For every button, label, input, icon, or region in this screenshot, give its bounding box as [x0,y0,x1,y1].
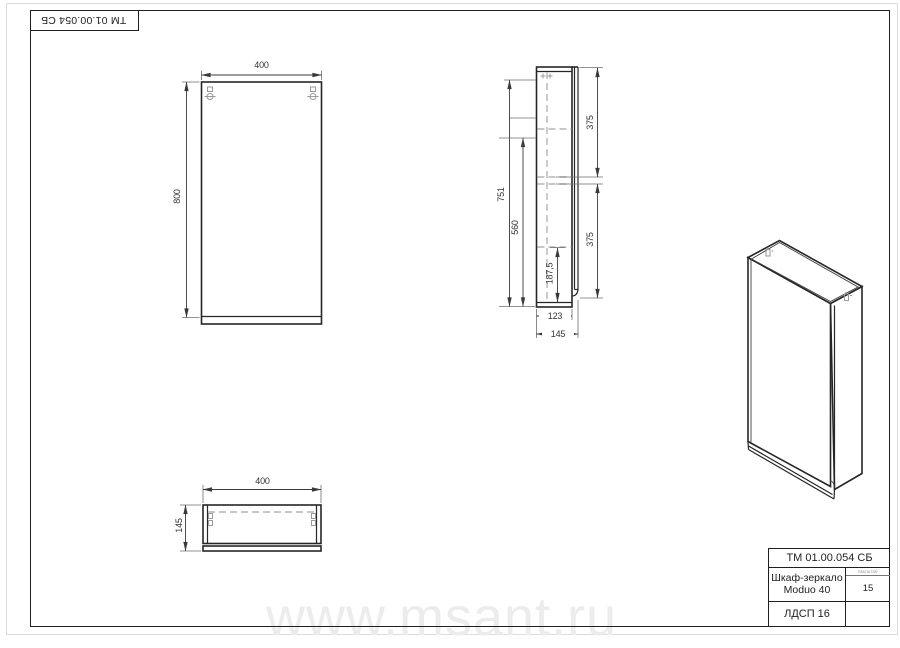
dim-bottom-width: 400 [245,477,280,486]
corner-stamp-code: ТМ 01.00.054 СБ [41,14,126,26]
corner-stamp: ТМ 01.00.054 СБ [30,10,139,31]
title-block: ТМ 01.00.054 СБ Шкаф-зеркало Moduo 40 Ма… [768,548,890,628]
dim-side-375-lower: 375 [586,222,595,257]
dim-side-560: 560 [511,210,520,245]
dim-side-187-5: 187,5 [546,252,555,296]
product-name: Шкаф-зеркало Moduo 40 [769,568,846,601]
dim-side-123: 123 [539,312,571,321]
drawing-frame [30,10,891,627]
scale-value: 15 [846,576,890,601]
product-name-line1: Шкаф-зеркало [771,572,843,584]
dim-bottom-depth: 145 [175,508,184,543]
material-cell: ЛДСП 16 [769,602,846,627]
scale-header: Масштаб [846,568,890,576]
scale-cell: Масштаб 15 [846,568,890,601]
dim-side-145: 145 [542,330,574,339]
product-name-line2: Moduo 40 [784,584,831,596]
title-block-code: ТМ 01.00.054 СБ [769,549,890,569]
empty-cell [846,602,890,627]
dim-front-width: 400 [244,61,279,70]
dim-side-751: 751 [497,177,506,212]
dim-side-375-upper: 375 [586,105,595,140]
dim-front-height: 800 [173,179,182,214]
